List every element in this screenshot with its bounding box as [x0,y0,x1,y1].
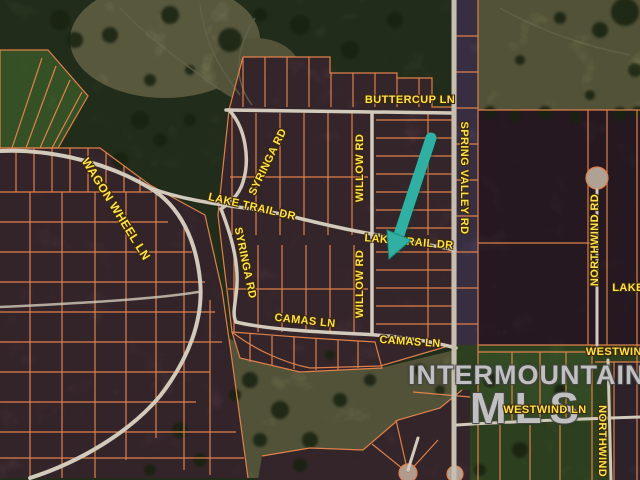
road-label-westwind-ln: WESTWIND LN [503,404,586,416]
road-label-westwind-cut: WESTWIND [586,346,640,358]
road-label-willow-rd-lower: WILLOW RD [354,250,366,318]
road-label-northwind-rd: NORTHWIND RD [589,194,601,286]
road-label-lake-cut: LAKE [612,282,640,294]
mls-satellite-parcel-map: INTERMOUNTAIN MLS BUTTERCUP LN SYRINGA R… [0,0,640,480]
road-label-willow-rd-upper: WILLOW RD [354,134,366,202]
road-label-spring-valley-rd: SPRING VALLEY RD [458,122,470,235]
road-label-buttercup-ln: BUTTERCUP LN [365,94,455,106]
road-label-northwind-rd-south: NORTHWIND R [596,405,608,480]
